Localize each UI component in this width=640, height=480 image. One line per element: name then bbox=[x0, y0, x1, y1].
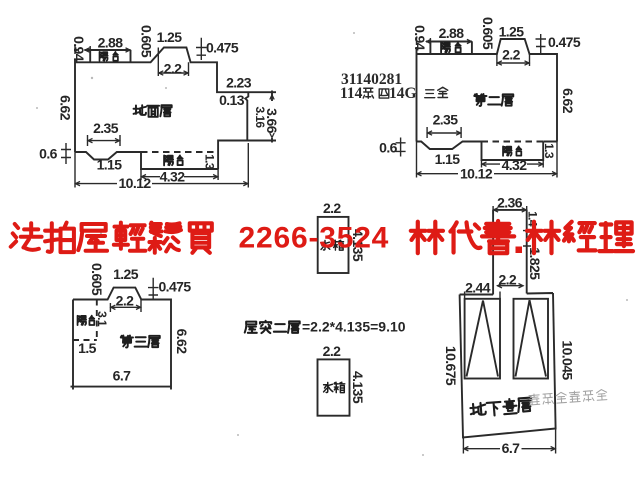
svg-text:2.36: 2.36 bbox=[497, 195, 523, 211]
svg-text:2.23: 2.23 bbox=[226, 75, 252, 91]
svg-text:4.135: 4.135 bbox=[350, 371, 366, 404]
svg-text:1.3: 1.3 bbox=[202, 154, 216, 170]
svg-text:10.675: 10.675 bbox=[443, 346, 459, 386]
svg-text:0.6: 0.6 bbox=[379, 140, 397, 156]
svg-text:0.94: 0.94 bbox=[412, 25, 428, 51]
svg-text:2.88: 2.88 bbox=[98, 35, 124, 51]
svg-text:0.475: 0.475 bbox=[548, 34, 581, 50]
svg-text:0.6: 0.6 bbox=[39, 146, 57, 162]
svg-text:1.15: 1.15 bbox=[97, 157, 123, 173]
svg-text:2.2: 2.2 bbox=[502, 47, 520, 63]
svg-text:1.25: 1.25 bbox=[113, 266, 139, 282]
svg-text:2.2: 2.2 bbox=[498, 272, 516, 288]
svg-text:1.25: 1.25 bbox=[157, 29, 183, 45]
svg-text:4.32: 4.32 bbox=[502, 157, 528, 173]
svg-text:10.12: 10.12 bbox=[460, 166, 493, 182]
svg-text:6.62: 6.62 bbox=[560, 88, 576, 114]
svg-text:0.605: 0.605 bbox=[139, 25, 155, 58]
svg-text:2.35: 2.35 bbox=[433, 112, 459, 128]
svg-text:0.605: 0.605 bbox=[89, 263, 105, 296]
svg-text:=2.2*4.135=9.10: =2.2*4.135=9.10 bbox=[302, 319, 406, 335]
svg-text:14G: 14G bbox=[389, 85, 417, 102]
svg-text:2.2: 2.2 bbox=[323, 343, 341, 359]
svg-text:0.94: 0.94 bbox=[71, 36, 87, 62]
svg-text:6.62: 6.62 bbox=[58, 95, 74, 121]
svg-text:2.2: 2.2 bbox=[116, 293, 134, 309]
svg-text:6.7: 6.7 bbox=[113, 368, 131, 384]
svg-text:1.25: 1.25 bbox=[499, 24, 525, 40]
svg-text:10.045: 10.045 bbox=[559, 340, 575, 380]
svg-text:0.605: 0.605 bbox=[480, 17, 496, 50]
svg-text:4.32: 4.32 bbox=[160, 169, 186, 185]
svg-text:0.475: 0.475 bbox=[159, 279, 192, 295]
svg-text:0.13: 0.13 bbox=[219, 92, 245, 108]
svg-text:6.7: 6.7 bbox=[502, 440, 520, 456]
svg-text:1.15: 1.15 bbox=[435, 151, 461, 167]
svg-text:2.2: 2.2 bbox=[323, 200, 341, 216]
svg-text:10.12: 10.12 bbox=[118, 175, 151, 191]
svg-text:2.2: 2.2 bbox=[164, 61, 182, 77]
svg-text:114: 114 bbox=[340, 85, 363, 102]
svg-text:6.62: 6.62 bbox=[174, 329, 190, 355]
svg-text:1.5: 1.5 bbox=[78, 340, 96, 356]
svg-text:2.88: 2.88 bbox=[439, 25, 465, 41]
svg-text:2.35: 2.35 bbox=[93, 120, 119, 136]
svg-text:3.1: 3.1 bbox=[95, 311, 109, 327]
svg-text:1.3: 1.3 bbox=[542, 143, 556, 159]
svg-text:3.66: 3.66 bbox=[264, 108, 280, 134]
svg-text:0.475: 0.475 bbox=[206, 40, 239, 56]
svg-text:2.44: 2.44 bbox=[465, 280, 491, 296]
svg-text:2266-3524: 2266-3524 bbox=[239, 222, 390, 255]
